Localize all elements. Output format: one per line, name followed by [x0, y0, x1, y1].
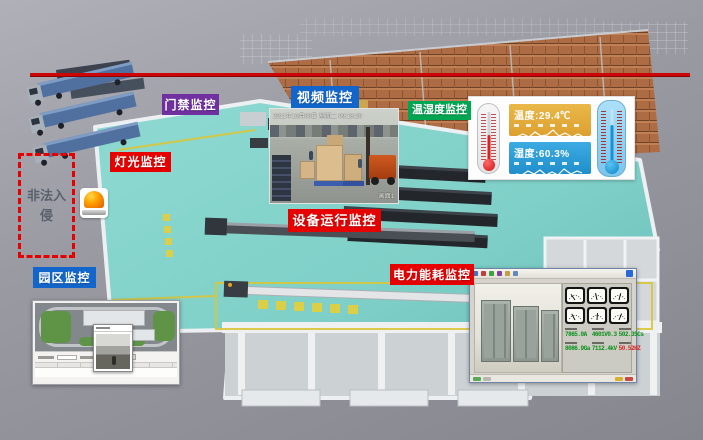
park-monitor-panel[interactable] — [32, 300, 180, 385]
toolbar-icon[interactable] — [489, 271, 494, 276]
blue-pallet — [314, 181, 345, 186]
power-reading: 4601V0.3 — [592, 328, 617, 338]
label-door-access-monitoring[interactable]: 门禁监控 — [162, 94, 219, 115]
label-temp-humidity-monitoring[interactable]: 温湿度监控 — [408, 101, 471, 120]
toolbar-icon[interactable] — [513, 271, 518, 276]
intrusion-alert-box[interactable]: 非法入侵 — [18, 153, 75, 258]
gauge-panel: 7865.0A 4601V0.3 502.35Cs 8086.9Ga 7112.… — [562, 283, 632, 373]
camera-image — [96, 334, 130, 369]
blue-pallet — [343, 181, 364, 186]
temperature-readout: 温度:29.4℃ — [509, 104, 591, 136]
tick-row — [514, 162, 586, 165]
label-park-monitoring[interactable]: 园区监控 — [33, 267, 96, 288]
forklift-wheel — [371, 177, 379, 185]
label-video-monitoring[interactable]: 视频监控 — [291, 86, 359, 108]
humidity-thermometer-icon — [597, 100, 626, 177]
analog-gauge — [587, 287, 607, 304]
switchgear-cabinet-photo — [474, 283, 562, 373]
worker — [358, 159, 362, 168]
person-silhouette — [112, 356, 116, 365]
intrusion-alert-text: 非法入侵 — [26, 186, 68, 225]
analog-gauge — [565, 307, 585, 324]
power-window-statusbar — [470, 374, 636, 382]
power-reading: 7865.0A — [565, 328, 590, 338]
control-label — [38, 356, 54, 359]
humidity-value: 湿度:60.3% — [514, 145, 586, 160]
warehouse-3d-monitoring-scene: 2011年10月08日 星期二 09:18:20 画面1 温度:29.4℃ 湿度… — [0, 0, 703, 440]
switchgear-cabinet — [481, 300, 511, 362]
forklift — [369, 155, 396, 179]
video-monitor-panel[interactable]: 2011年10月08日 星期二 09:18:20 画面1 — [269, 108, 399, 204]
power-window-toolbar[interactable] — [470, 269, 636, 279]
switchgear-cabinet — [541, 310, 559, 362]
humidity-sparkline — [514, 166, 584, 177]
carton-stack — [300, 161, 315, 179]
popup-titlebar[interactable] — [94, 325, 132, 332]
map-building — [131, 329, 155, 341]
label-equipment-monitoring[interactable]: 设备运行监控 — [288, 209, 381, 232]
carton — [327, 135, 343, 145]
analog-gauge — [609, 287, 629, 304]
temperature-value: 温度:29.4℃ — [514, 107, 586, 122]
power-reading-frequency: 50.52HZ — [619, 342, 644, 352]
carton-stack — [316, 145, 343, 181]
forklift-wheel — [387, 177, 395, 185]
power-monitor-window[interactable]: 7865.0A 4601V0.3 502.35Cs 8086.9Ga 7112.… — [469, 268, 637, 383]
red-divider-line — [30, 73, 690, 77]
humidity-readout: 湿度:60.3% — [509, 142, 591, 174]
green-area — [153, 311, 175, 341]
tick-row — [514, 124, 586, 127]
switchgear-cabinet — [513, 306, 539, 362]
window-icon[interactable] — [626, 270, 633, 277]
beacon-dome — [84, 191, 104, 208]
analog-gauge — [587, 307, 607, 324]
analog-gauge — [609, 307, 629, 324]
green-area — [41, 311, 71, 343]
toolbar-icon[interactable] — [481, 271, 486, 276]
analog-gauge — [565, 287, 585, 304]
alarm-beacon-icon[interactable] — [80, 188, 108, 218]
camera-popup[interactable] — [93, 324, 133, 372]
temperature-sparkline — [514, 128, 584, 139]
power-reading: 8086.9Ga — [565, 342, 590, 352]
pallet-rack — [272, 155, 291, 201]
toolbar-icon[interactable] — [505, 271, 510, 276]
worker — [309, 151, 313, 160]
video-channel-label: 画面1 — [379, 191, 394, 200]
toolbar-icon[interactable] — [497, 271, 502, 276]
power-reading: 502.35Cs — [619, 328, 644, 338]
temperature-thermometer-icon — [477, 103, 500, 174]
video-timestamp: 2011年10月08日 星期二 09:18:20 — [273, 111, 362, 120]
beacon-base — [82, 210, 106, 215]
date-field[interactable] — [57, 355, 77, 360]
label-lighting-monitoring[interactable]: 灯光监控 — [110, 152, 171, 172]
power-reading: 7112.4kV — [592, 342, 617, 352]
temp-humidity-panel[interactable]: 温度:29.4℃ 湿度:60.3% — [468, 96, 635, 180]
label-power-monitoring[interactable]: 电力能耗监控 — [390, 264, 474, 285]
